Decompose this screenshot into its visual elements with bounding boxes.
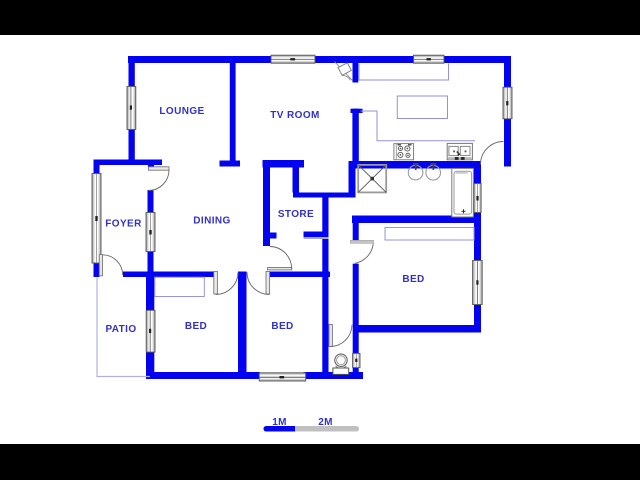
svg-text:2M: 2M [318,417,333,428]
svg-text:BED: BED [185,321,207,332]
svg-text:BED: BED [271,321,293,332]
svg-text:PATIO: PATIO [105,324,136,335]
svg-text:FOYER: FOYER [105,219,142,230]
svg-text:1M: 1M [272,417,287,428]
svg-text:STORE: STORE [278,209,314,220]
svg-text:BED: BED [402,274,424,285]
svg-text:DINING: DINING [193,216,230,227]
svg-text:TV ROOM: TV ROOM [270,110,319,121]
svg-text:LOUNGE: LOUNGE [159,106,204,117]
